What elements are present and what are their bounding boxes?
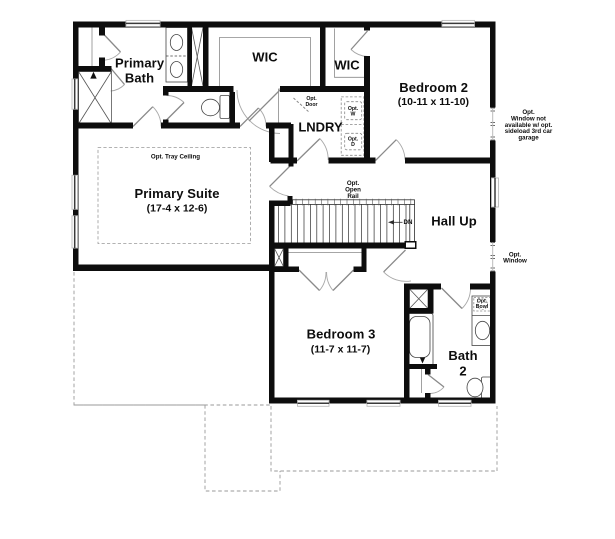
svg-text:Bowl: Bowl (476, 304, 489, 310)
svg-text:Window: Window (503, 258, 527, 265)
svg-text:Bedroom 2: Bedroom 2 (399, 80, 468, 95)
svg-text:W: W (351, 111, 356, 117)
svg-text:Door: Door (305, 102, 317, 108)
svg-text:(17-4 x 12-6): (17-4 x 12-6) (147, 203, 208, 215)
svg-text:D: D (351, 142, 355, 148)
svg-text:Rail: Rail (347, 193, 359, 200)
svg-text:(11-7 x 11-7): (11-7 x 11-7) (311, 344, 371, 356)
svg-text:Bath: Bath (125, 70, 154, 85)
svg-text:Opt. Tray Ceiling: Opt. Tray Ceiling (151, 154, 200, 161)
svg-text:Bedroom 3: Bedroom 3 (307, 327, 376, 342)
svg-text:Primary: Primary (115, 56, 165, 71)
svg-text:LNDRY: LNDRY (298, 120, 343, 135)
svg-text:(10-11 x 11-10): (10-11 x 11-10) (398, 96, 469, 108)
svg-text:2: 2 (459, 364, 466, 379)
svg-text:WIC: WIC (334, 57, 360, 72)
svg-text:garage: garage (518, 135, 539, 142)
svg-text:Bath: Bath (448, 348, 477, 363)
svg-text:Primary Suite: Primary Suite (134, 186, 219, 201)
svg-text:DN: DN (404, 219, 413, 226)
svg-text:Hall Up: Hall Up (431, 214, 476, 229)
svg-text:WIC: WIC (252, 50, 278, 65)
